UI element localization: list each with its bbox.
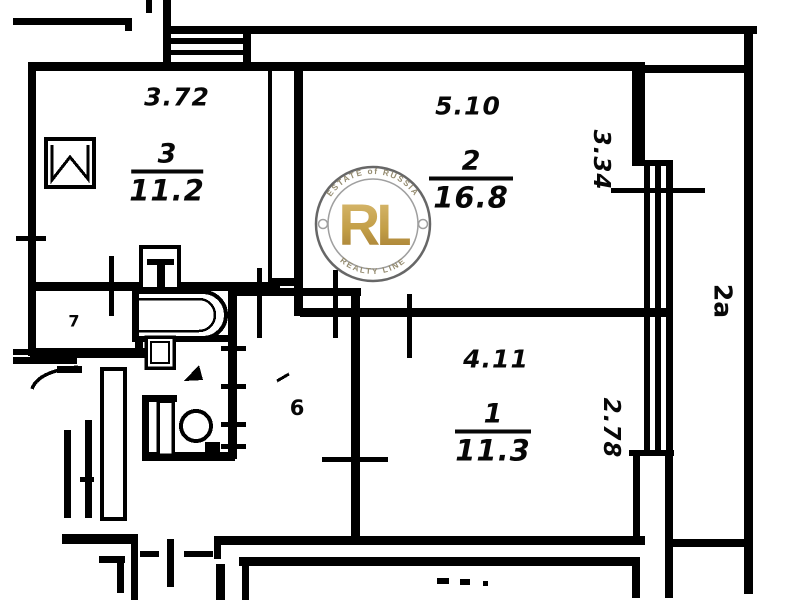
room-2-depth-dimension: 3.34	[588, 130, 614, 191]
room-3-label: 3 11.2	[129, 141, 205, 206]
floor-plan-page: ESTATE of RUSSIA REALTY LINE RL 3.72 3 1…	[0, 0, 800, 600]
room-1-number: 1	[484, 401, 503, 428]
hall-number: 6	[290, 396, 305, 420]
labels-layer: 3.72 3 11.2 5.10 2 16.8 3.34 4.11 1 11.3…	[0, 0, 800, 600]
room-3-width-dimension: 3.72	[144, 83, 210, 112]
room-3-area: 11.2	[129, 177, 205, 206]
room-2-number: 2	[462, 148, 481, 175]
room-2-area: 16.8	[433, 184, 509, 213]
room-2-label: 2 16.8	[429, 148, 513, 213]
room-1-label: 1 11.3	[455, 401, 531, 466]
storage-number: 7	[68, 312, 79, 331]
balcony-label: 2a	[709, 284, 738, 318]
room-1-depth-dimension: 2.78	[598, 398, 624, 459]
room-3-number: 3	[158, 141, 177, 168]
room-1-area: 11.3	[455, 437, 531, 466]
room-1-width-dimension: 4.11	[463, 345, 529, 374]
room-2-width-dimension: 5.10	[435, 92, 501, 121]
